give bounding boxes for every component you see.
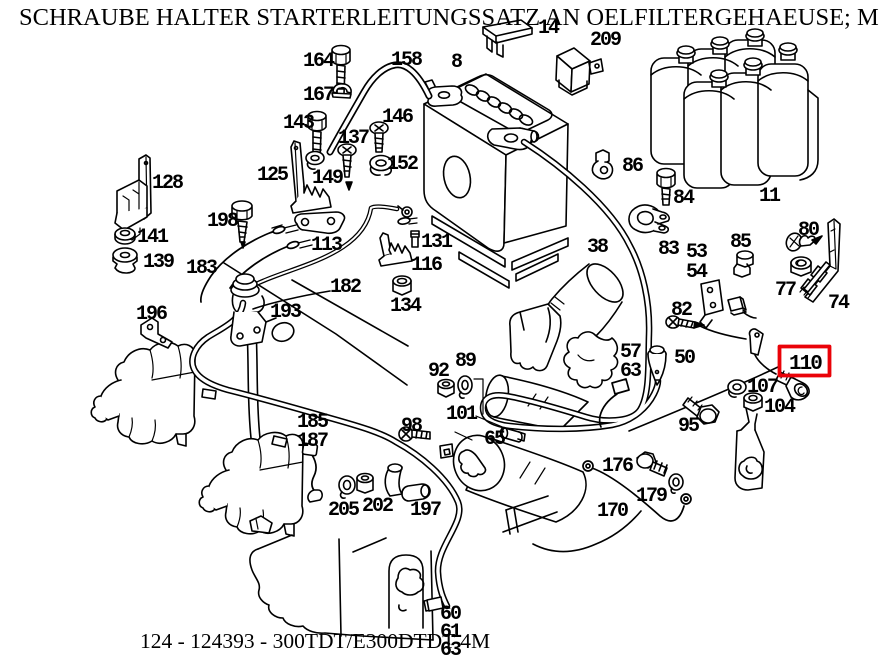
svg-text:8: 8	[451, 51, 462, 74]
svg-text:167: 167	[303, 84, 334, 107]
svg-text:125: 125	[257, 164, 288, 187]
svg-text:84: 84	[673, 187, 695, 210]
svg-text:80: 80	[798, 219, 819, 242]
svg-text:83: 83	[658, 238, 679, 261]
svg-text:86: 86	[622, 155, 643, 178]
svg-text:158: 158	[391, 49, 422, 72]
svg-text:82: 82	[671, 299, 692, 322]
svg-text:131: 131	[421, 231, 453, 254]
svg-text:124 - 124393 - 300TDT/E300DTDT: 124 - 124393 - 300TDT/E300DTDT 4M	[140, 629, 490, 653]
svg-text:116: 116	[411, 254, 442, 277]
svg-text:85: 85	[730, 231, 751, 254]
svg-text:89: 89	[455, 350, 476, 373]
svg-text:11: 11	[759, 185, 781, 208]
svg-text:196: 196	[136, 303, 167, 326]
svg-text:209: 209	[590, 29, 621, 52]
svg-text:179: 179	[636, 485, 667, 508]
svg-text:65: 65	[484, 428, 505, 451]
svg-text:SCHRAUBE HALTER STARTERLEITUNG: SCHRAUBE HALTER STARTERLEITUNGSSATZ AN O…	[19, 4, 879, 31]
svg-text:128: 128	[152, 172, 183, 195]
svg-text:183: 183	[186, 257, 217, 280]
svg-text:198: 198	[207, 210, 238, 233]
svg-text:137: 137	[338, 127, 369, 150]
svg-text:50: 50	[674, 347, 695, 370]
svg-text:193: 193	[270, 301, 301, 324]
svg-text:202: 202	[362, 495, 393, 518]
svg-text:141: 141	[137, 226, 169, 249]
svg-text:182: 182	[330, 276, 361, 299]
svg-text:54: 54	[686, 261, 708, 284]
svg-text:134: 134	[390, 295, 422, 318]
svg-text:104: 104	[764, 396, 796, 419]
svg-text:164: 164	[303, 50, 335, 73]
svg-text:176: 176	[602, 455, 633, 478]
svg-text:143: 143	[283, 112, 314, 135]
svg-text:101: 101	[446, 403, 478, 426]
svg-text:74: 74	[828, 292, 850, 315]
svg-text:149: 149	[312, 167, 343, 190]
svg-text:146: 146	[382, 106, 413, 129]
svg-text:92: 92	[428, 360, 449, 383]
svg-text:139: 139	[143, 251, 174, 274]
svg-text:98: 98	[401, 415, 422, 438]
svg-text:95: 95	[678, 415, 699, 438]
svg-text:113: 113	[311, 234, 342, 257]
svg-text:77: 77	[775, 279, 796, 302]
svg-text:187: 187	[297, 430, 328, 453]
svg-text:152: 152	[387, 153, 418, 176]
svg-text:170: 170	[597, 500, 628, 523]
svg-text:63: 63	[620, 360, 641, 383]
svg-text:38: 38	[587, 236, 608, 259]
svg-text:197: 197	[410, 499, 441, 522]
svg-text:205: 205	[328, 499, 359, 522]
svg-text:110: 110	[789, 353, 822, 376]
